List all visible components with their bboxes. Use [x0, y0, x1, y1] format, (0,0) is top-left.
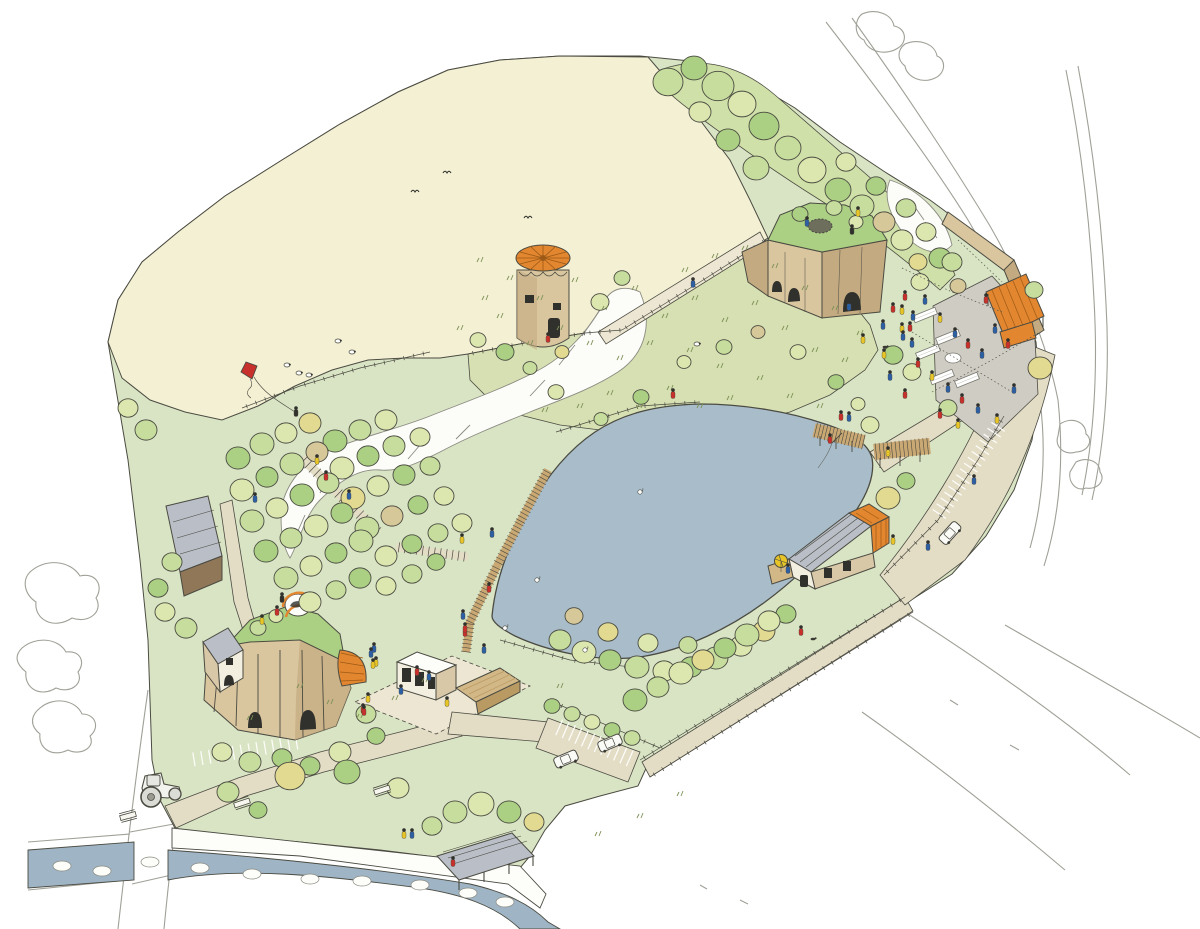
person [972, 474, 976, 484]
tree [240, 510, 264, 532]
tree [638, 634, 658, 652]
person-body [891, 306, 895, 313]
person-head [938, 408, 942, 412]
river-boulder [93, 866, 111, 876]
person-head [786, 563, 790, 567]
person-head [926, 540, 930, 544]
sheep [694, 342, 701, 346]
person-body [315, 458, 319, 465]
swan-body [583, 648, 587, 652]
person-head [908, 321, 912, 325]
tree [836, 153, 856, 171]
tower-window [525, 295, 534, 303]
tree [331, 503, 353, 523]
person-head [374, 656, 378, 660]
cafe-door [800, 575, 808, 587]
person [799, 625, 803, 635]
tree [326, 581, 346, 599]
person-head [451, 856, 455, 860]
person [901, 330, 905, 340]
tree [653, 68, 683, 96]
tractor-cab [147, 775, 160, 786]
river-boulder [301, 874, 319, 884]
tree [790, 345, 806, 360]
tree [496, 344, 514, 361]
person-body [956, 422, 960, 429]
person [980, 348, 984, 358]
person [280, 592, 284, 602]
person [253, 492, 257, 502]
tree [266, 498, 288, 518]
person [671, 388, 675, 398]
tree [367, 728, 385, 745]
person-head [369, 647, 373, 651]
tree [851, 398, 865, 411]
tree [679, 637, 697, 654]
person [861, 333, 865, 343]
person [691, 277, 695, 287]
person-head [415, 665, 419, 669]
tree [375, 410, 397, 430]
tree [357, 446, 379, 466]
person-body [976, 407, 980, 414]
person-head [372, 642, 376, 646]
tree [826, 201, 842, 216]
tree [594, 413, 608, 426]
tree [239, 752, 261, 772]
river-boulder [141, 857, 159, 867]
tree [625, 656, 649, 678]
person-head [956, 418, 960, 422]
person-head [1006, 338, 1010, 342]
person-body [786, 567, 790, 574]
person [966, 338, 970, 348]
person-body [399, 688, 403, 695]
person-head [938, 312, 942, 316]
tree [751, 326, 765, 339]
person-body [972, 478, 976, 485]
person-body [946, 386, 950, 393]
tree [714, 638, 736, 658]
person-body [938, 316, 942, 323]
person [847, 411, 851, 421]
person [805, 216, 809, 226]
tree [716, 340, 732, 355]
person-head [901, 330, 905, 334]
masterplan-sketch [0, 0, 1200, 929]
tree [689, 102, 711, 122]
person-body [1006, 342, 1010, 349]
person [847, 300, 851, 310]
person [960, 393, 964, 403]
tree [614, 271, 630, 286]
tree [367, 476, 389, 496]
person-head [460, 533, 464, 537]
person [275, 605, 279, 615]
person-head [294, 406, 298, 410]
sheep-head [289, 364, 291, 366]
person-head [546, 332, 550, 336]
person-head [399, 684, 403, 688]
person-body [461, 613, 465, 620]
tree [555, 346, 569, 359]
person [839, 410, 843, 420]
tree [118, 399, 138, 417]
person [369, 647, 373, 657]
person [976, 403, 980, 413]
person-body [916, 361, 920, 368]
person [427, 670, 431, 680]
person [546, 332, 550, 342]
person-head [900, 304, 904, 308]
tractor-wheel-front [169, 788, 181, 800]
person [786, 563, 790, 573]
sheep [284, 363, 291, 367]
person [908, 321, 912, 331]
person-body [487, 586, 491, 593]
tree [434, 487, 454, 505]
person-body [911, 314, 915, 321]
tree [909, 254, 927, 271]
tree [942, 253, 962, 271]
tree [410, 428, 430, 446]
person [888, 370, 892, 380]
person-head [976, 403, 980, 407]
tree [349, 420, 371, 440]
person-body [903, 392, 907, 399]
swan-body [535, 578, 539, 582]
tree [275, 762, 305, 790]
sketch-trees-topright [856, 12, 943, 81]
tree [1028, 357, 1052, 379]
person-body [953, 331, 957, 338]
tree [217, 782, 239, 802]
person-head [930, 370, 934, 374]
river-boulder [353, 876, 371, 886]
tree [135, 420, 157, 440]
dog-head [887, 345, 889, 347]
person-body [908, 325, 912, 332]
tree [702, 71, 734, 100]
tree [402, 565, 422, 583]
person-head [850, 224, 854, 228]
river-boulder [53, 861, 71, 871]
sheep [306, 373, 313, 377]
tree [256, 467, 278, 487]
person-head [888, 370, 892, 374]
person-body [993, 327, 997, 334]
sheep [349, 350, 356, 354]
person-head [410, 828, 414, 832]
person [460, 533, 464, 543]
person-head [911, 310, 915, 314]
tree [175, 618, 197, 638]
tree [375, 546, 397, 566]
sketch-trees-west [17, 563, 99, 753]
person-head [691, 277, 695, 281]
person-head [260, 614, 264, 618]
person-head [671, 388, 675, 392]
river-west-segment [28, 842, 134, 888]
person-body [995, 417, 999, 424]
person-body [324, 474, 328, 481]
tree [911, 274, 929, 291]
person-body [463, 626, 467, 633]
tree [427, 554, 445, 571]
person-body [445, 700, 449, 707]
tower-body-shade [517, 270, 537, 350]
person-head [463, 622, 467, 626]
person-head [886, 446, 890, 450]
tree [749, 112, 779, 140]
tree [329, 742, 351, 762]
person [402, 828, 406, 838]
person-head [366, 692, 370, 696]
person [1006, 338, 1010, 348]
person-head [315, 454, 319, 458]
dog-head [815, 637, 817, 639]
person [490, 527, 494, 537]
person [315, 454, 319, 464]
person-body [253, 496, 257, 503]
person [956, 418, 960, 428]
tree [825, 178, 851, 202]
person-body [460, 537, 464, 544]
tree [422, 817, 442, 835]
person [410, 828, 414, 838]
tree [873, 212, 895, 232]
swan-body [503, 626, 507, 630]
person [891, 534, 895, 544]
illustration-canvas [0, 0, 1200, 929]
tree [443, 801, 467, 823]
tree [692, 650, 714, 670]
tree [148, 579, 168, 597]
person [487, 582, 491, 592]
person-head [980, 348, 984, 352]
kiln-pit [808, 219, 832, 233]
tractor-wheel-rear-hub [148, 794, 155, 801]
tree [598, 623, 618, 641]
person-head [923, 294, 927, 298]
person-body [966, 342, 970, 349]
tree [452, 514, 472, 532]
person-body [903, 294, 907, 301]
tree [828, 375, 844, 390]
person [946, 382, 950, 392]
person [1012, 383, 1016, 393]
person-body [888, 374, 892, 381]
person-head [275, 605, 279, 609]
tree [647, 677, 669, 697]
person-head [461, 609, 465, 613]
person [445, 696, 449, 706]
person [260, 614, 264, 624]
person [953, 327, 957, 337]
person-body [923, 298, 927, 305]
person-body [938, 412, 942, 419]
sheep-head [340, 340, 342, 342]
tree [669, 662, 693, 684]
person-body [371, 662, 375, 669]
person-head [347, 489, 351, 493]
sheep [296, 371, 303, 375]
cafe-window [824, 568, 832, 578]
person-body [805, 220, 809, 227]
tree [524, 813, 544, 831]
person-body [369, 651, 373, 658]
person-head [953, 327, 957, 331]
person-head [839, 410, 843, 414]
person [891, 302, 895, 312]
person [371, 658, 375, 668]
person-body [828, 437, 832, 444]
tree [155, 603, 175, 621]
person-body [691, 281, 695, 288]
tree [716, 129, 740, 151]
tree [866, 177, 886, 195]
tree [212, 743, 232, 761]
river-boulder [191, 863, 209, 873]
person-head [280, 592, 284, 596]
person-head [482, 643, 486, 647]
person-head [799, 625, 803, 629]
person [856, 206, 860, 216]
person-body [980, 352, 984, 359]
person-head [903, 290, 907, 294]
person [938, 408, 942, 418]
person-body [546, 336, 550, 343]
tree [681, 56, 707, 80]
tree [275, 423, 297, 443]
round-table [945, 353, 961, 363]
tree [735, 624, 759, 646]
person [366, 692, 370, 702]
person-body [275, 609, 279, 616]
person [984, 293, 988, 303]
person-body [490, 531, 494, 538]
person-body [881, 323, 885, 330]
tree [861, 417, 879, 434]
person-body [984, 297, 988, 304]
person-head [881, 319, 885, 323]
person [886, 446, 890, 456]
tree [420, 457, 440, 475]
tree [349, 530, 373, 552]
tree [470, 333, 486, 348]
person-body [930, 374, 934, 381]
person-body [671, 392, 675, 399]
person-head [847, 300, 851, 304]
person [399, 684, 403, 694]
person [324, 470, 328, 480]
person-head [856, 206, 860, 210]
tree [565, 608, 583, 625]
person [926, 540, 930, 550]
swan-body [638, 490, 642, 494]
person-body [362, 709, 366, 716]
person-head [900, 322, 904, 326]
sheep-head [699, 343, 701, 345]
cafe-window-2 [843, 561, 851, 571]
person-body [280, 596, 284, 603]
person [903, 388, 907, 398]
tree [624, 731, 640, 746]
person-head [891, 534, 895, 538]
person-body [415, 669, 419, 676]
tree [548, 385, 564, 400]
person [938, 312, 942, 322]
person-head [916, 357, 920, 361]
tree [758, 611, 780, 631]
sheep-head [311, 374, 313, 376]
tree [775, 136, 801, 160]
tree [876, 487, 900, 509]
tree [798, 157, 826, 183]
visitor-glazing [402, 668, 411, 682]
person-body [891, 538, 895, 545]
person [415, 665, 419, 675]
tree [299, 413, 321, 433]
tree [280, 528, 302, 548]
person-body [347, 493, 351, 500]
grass-tuft [677, 791, 683, 796]
tree [497, 801, 521, 823]
person-body [960, 397, 964, 404]
tower-window-2 [553, 303, 561, 310]
person [881, 319, 885, 329]
tree [564, 707, 580, 722]
person-body [294, 410, 298, 417]
tree [280, 453, 304, 475]
person [900, 304, 904, 314]
person-head [891, 302, 895, 306]
tower-roof-hub [540, 255, 546, 261]
tree [387, 778, 409, 798]
person-head [371, 658, 375, 662]
person-body [901, 334, 905, 341]
tree [162, 553, 182, 571]
person-head [847, 411, 851, 415]
tree [891, 230, 913, 250]
river-boulder [243, 869, 261, 879]
person [911, 310, 915, 320]
person [995, 413, 999, 423]
person-head [362, 705, 366, 709]
tickline-base [874, 446, 930, 452]
person-body [402, 832, 406, 839]
picnic-table [119, 810, 137, 823]
person-body [847, 415, 851, 422]
tree [254, 540, 278, 562]
person [461, 609, 465, 619]
tree [544, 699, 560, 714]
person [463, 622, 467, 632]
person-body [1012, 387, 1016, 394]
round-tower [516, 245, 570, 350]
tree [523, 362, 537, 375]
person-body [839, 414, 843, 421]
tree [584, 715, 600, 730]
tree [334, 760, 360, 784]
person-body [900, 308, 904, 315]
person-head [993, 323, 997, 327]
grass-tuft [637, 813, 643, 818]
tree [591, 294, 609, 311]
person-body [427, 674, 431, 681]
person-head [487, 582, 491, 586]
tree [792, 207, 808, 222]
